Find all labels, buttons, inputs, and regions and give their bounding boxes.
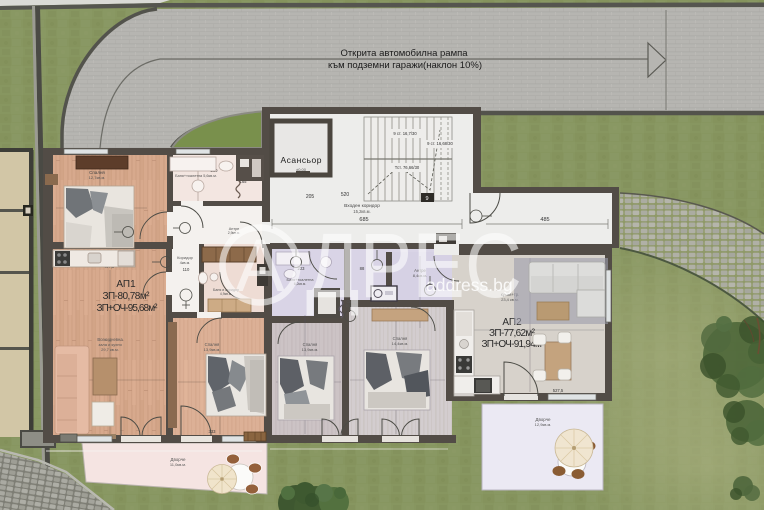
- svg-text:А: А: [235, 224, 285, 307]
- svg-text:13,9кв.м.: 13,9кв.м.: [302, 347, 319, 352]
- svg-text:12,7кв.м.: 12,7кв.м.: [89, 175, 106, 180]
- svg-text:520: 520: [341, 192, 350, 198]
- svg-text:Открита автомобилна рампа: Открита автомобилна рампа: [340, 48, 468, 59]
- svg-text:29,7 кв.м.: 29,7 кв.м.: [101, 347, 119, 352]
- svg-text:333: 333: [209, 429, 217, 434]
- svg-text:ЗП-77,62м²: ЗП-77,62м²: [489, 328, 536, 339]
- svg-text:9 ст. 16,7/30: 9 ст. 16,7/30: [393, 131, 417, 136]
- svg-text:Асансьор: Асансьор: [281, 155, 322, 165]
- svg-text:14,4кв.м.: 14,4кв.м.: [392, 341, 409, 346]
- svg-text:Коридор: Коридор: [177, 255, 194, 260]
- svg-text:12,9кв.м.: 12,9кв.м.: [535, 422, 552, 427]
- svg-text:±0,00: ±0,00: [296, 167, 307, 172]
- svg-text:485: 485: [540, 217, 549, 223]
- svg-text:към подземни гаражи(наклон 10%: към подземни гаражи(наклон 10%): [328, 60, 482, 71]
- svg-text:АП1: АП1: [116, 279, 136, 290]
- svg-text:Тст. 76,66/30: Тст. 76,66/30: [395, 165, 420, 170]
- svg-text:address.bg: address.bg: [426, 275, 513, 295]
- svg-text:15,2кв.м.: 15,2кв.м.: [353, 209, 370, 214]
- svg-text:ЗП+ОЧ-95,68м²: ЗП+ОЧ-95,68м²: [97, 303, 159, 314]
- svg-text:ДРЕС: ДРЕС: [306, 215, 522, 317]
- svg-text:205: 205: [306, 194, 315, 200]
- svg-text:110: 110: [183, 267, 190, 272]
- svg-text:13,9кв.м.: 13,9кв.м.: [204, 347, 221, 352]
- svg-text:527,5: 527,5: [553, 388, 564, 393]
- svg-text:11,0кв.м.: 11,0кв.м.: [170, 462, 186, 467]
- svg-text:9: 9: [425, 196, 428, 202]
- svg-text:Баня+тоалетна 5,6кв.м.: Баня+тоалетна 5,6кв.м.: [175, 174, 217, 178]
- svg-text:4кв.м.: 4кв.м.: [180, 261, 191, 265]
- svg-text:9 ст. 16,68/30: 9 ст. 16,68/30: [427, 141, 453, 146]
